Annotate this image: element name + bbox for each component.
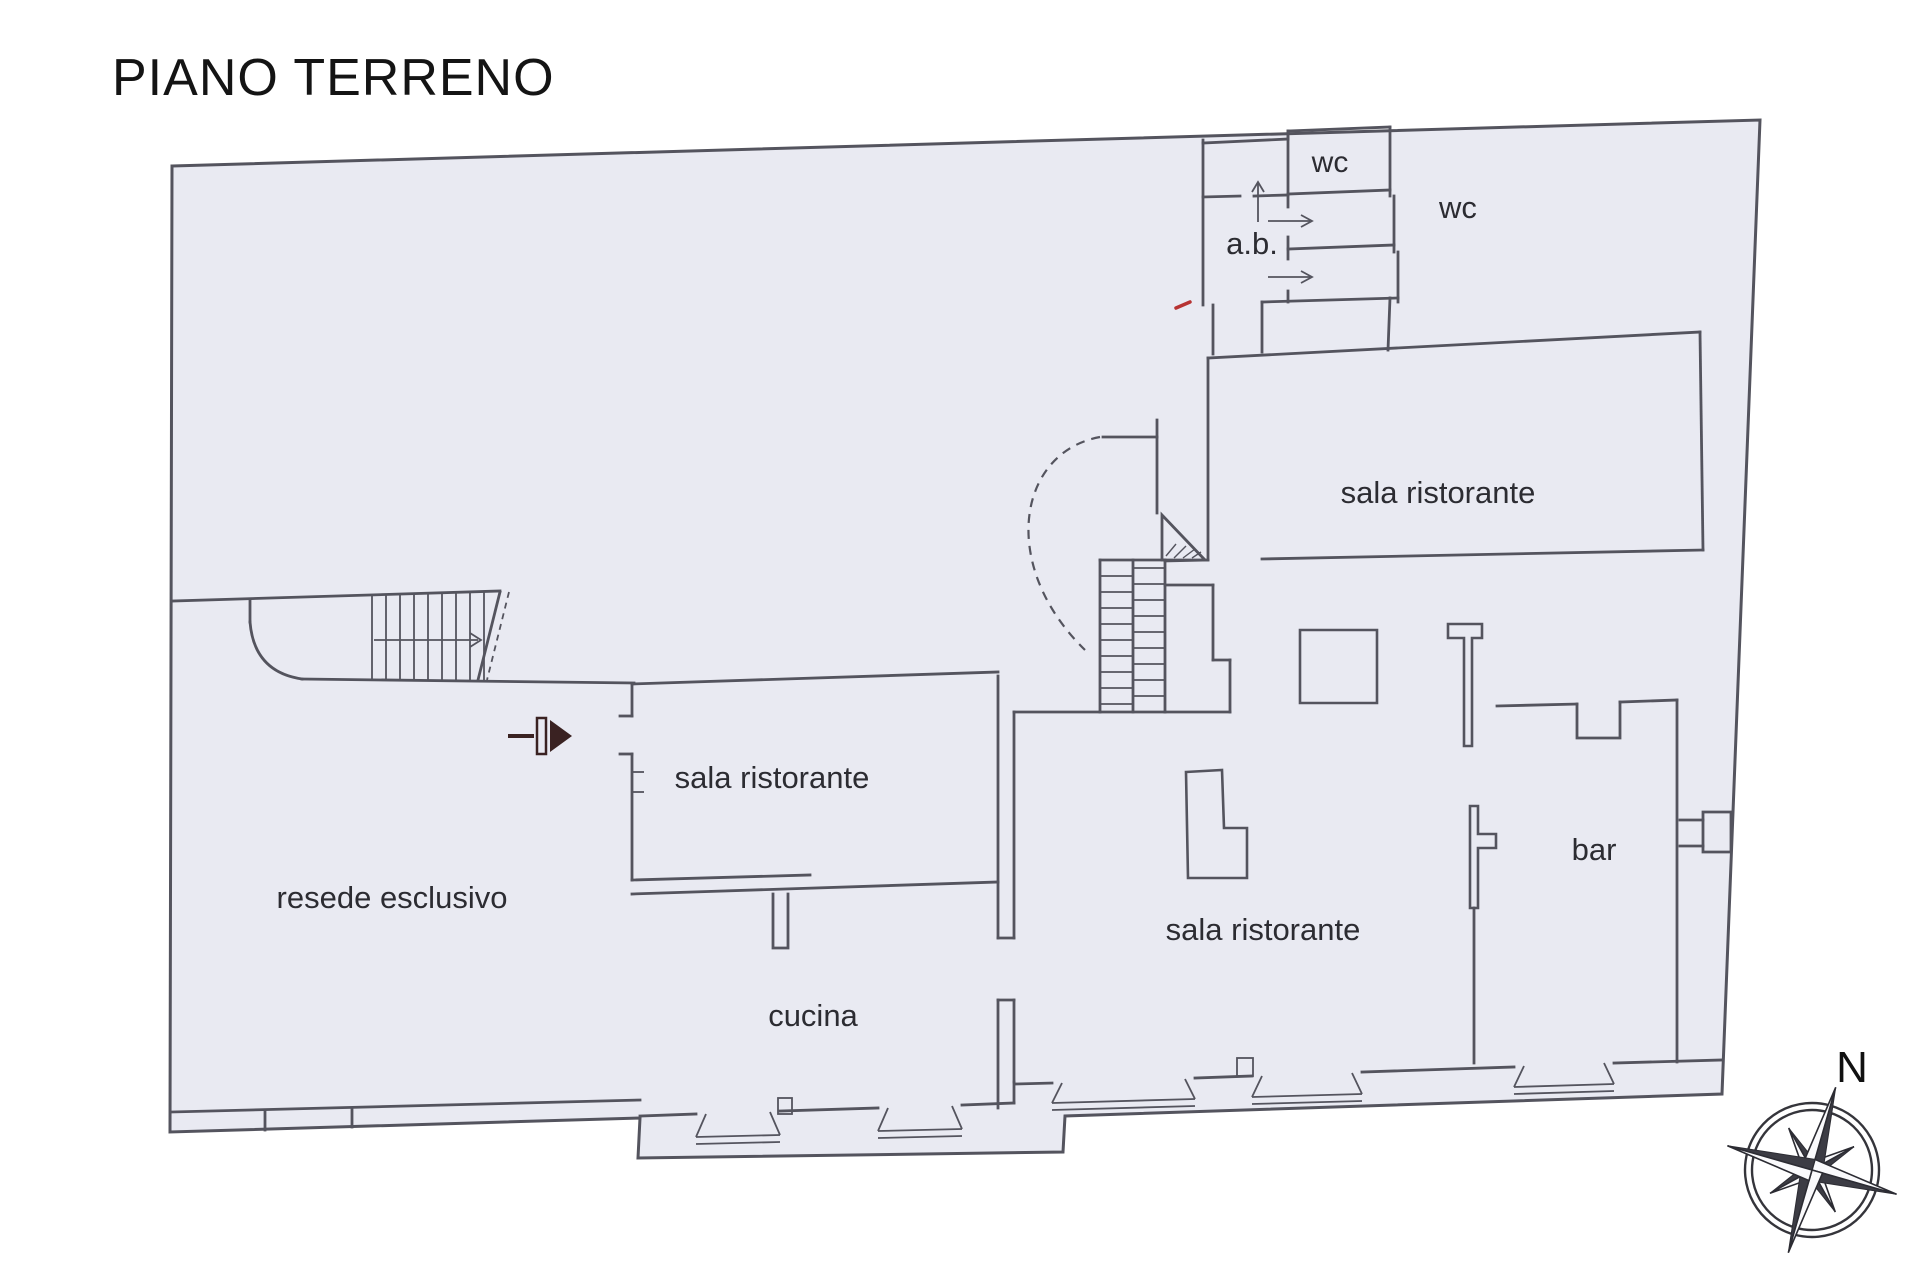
scanned-floor-plan-page: PIANO TERRENO: [0, 0, 1920, 1280]
room-label-cucina: cucina: [768, 998, 858, 1033]
room-label-sala-centrale: sala ristorante: [1166, 912, 1361, 947]
parcel-outline: [170, 120, 1760, 1158]
north-label: N: [1836, 1043, 1868, 1092]
room-label-wc-top: wc: [1311, 146, 1349, 179]
floor-plan-drawing: wc wc a.b. sala ristorante sala ristoran…: [0, 0, 1920, 1280]
room-label-resede: resede esclusivo: [277, 880, 508, 915]
room-label-sala-nord: sala ristorante: [1341, 475, 1536, 510]
room-label-sala-ovest: sala ristorante: [675, 760, 870, 795]
compass-rose-icon: N: [1704, 1043, 1920, 1277]
room-label-bar: bar: [1572, 832, 1617, 867]
room-label-wc-right: wc: [1438, 190, 1477, 225]
room-label-anti-bagno: a.b.: [1226, 226, 1278, 261]
